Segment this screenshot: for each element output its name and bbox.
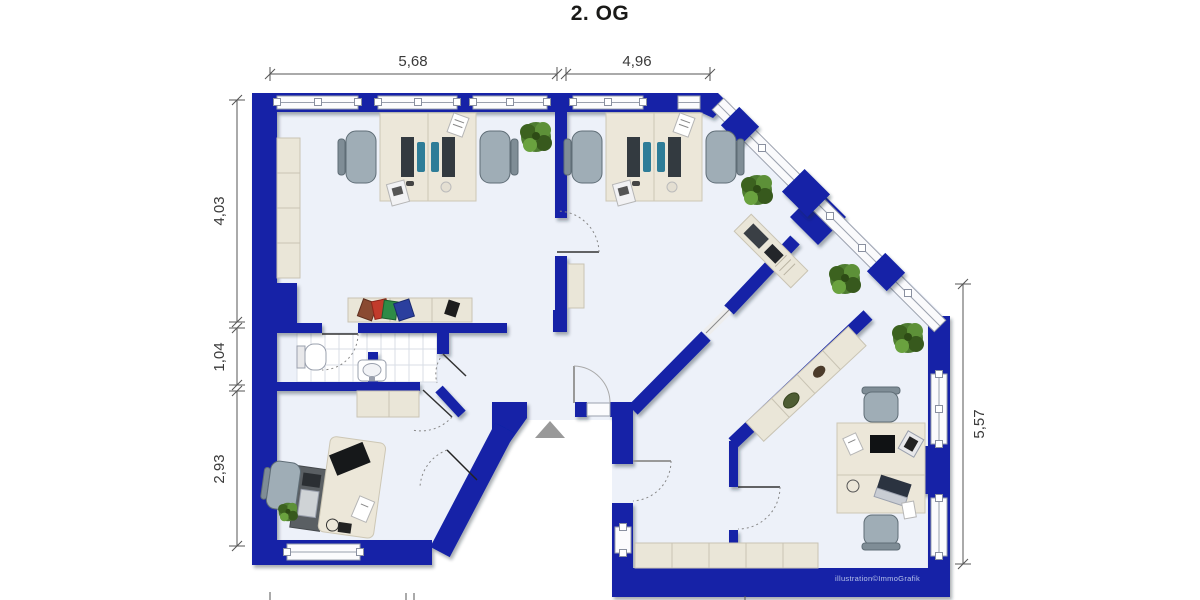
cabinet-vestibule [357, 391, 419, 417]
window-mid-west [615, 524, 631, 557]
window-top-4 [570, 96, 647, 109]
wall-vestibule [437, 332, 449, 354]
window-bottom-left [284, 544, 364, 560]
wc-sink [358, 360, 386, 381]
credit-watermark: illustration©ImmoGrafik [835, 574, 920, 583]
dim-left-bottom: 2,93 [211, 454, 228, 483]
monitor-icon [870, 435, 895, 453]
wall-mid-west-a [612, 402, 633, 464]
dim-top-right: 4,96 [622, 53, 651, 70]
office-chair [864, 392, 898, 422]
floor-plan: 5,68 4,96 4,03 1,04 2,93 5,57 illustrati… [0, 0, 1200, 600]
wall-bath-south [277, 382, 420, 391]
window-right-2 [931, 495, 947, 560]
dim-left-top: 4,03 [211, 196, 228, 225]
wall-hall-a [277, 323, 322, 333]
sideboard-office1 [348, 298, 472, 322]
window-right-1 [931, 371, 947, 448]
wc-toilet [297, 344, 326, 370]
sideboard-long [635, 543, 818, 568]
window-top-5 [678, 96, 700, 109]
office-chair [864, 515, 898, 545]
screen-icon [302, 473, 322, 488]
wardrobe-cabinet [568, 264, 584, 308]
wall-hall-b [358, 323, 507, 333]
dim-left-mid: 1,04 [211, 342, 228, 371]
window-top-2 [375, 96, 461, 109]
entrance-arrow-icon [535, 421, 565, 438]
window-top-3 [470, 96, 551, 109]
cabinet-left-wall [277, 138, 300, 278]
wall-mid-stub-a [729, 441, 738, 487]
wall-divider-lower [555, 256, 567, 332]
window-top-1 [274, 96, 362, 109]
dim-top-left: 5,68 [398, 53, 427, 70]
dim-right: 5,57 [971, 409, 988, 438]
wall-right-pier [922, 446, 950, 494]
wall-entry-a [575, 402, 587, 417]
floorplan-page: 2. OG [0, 0, 1200, 600]
